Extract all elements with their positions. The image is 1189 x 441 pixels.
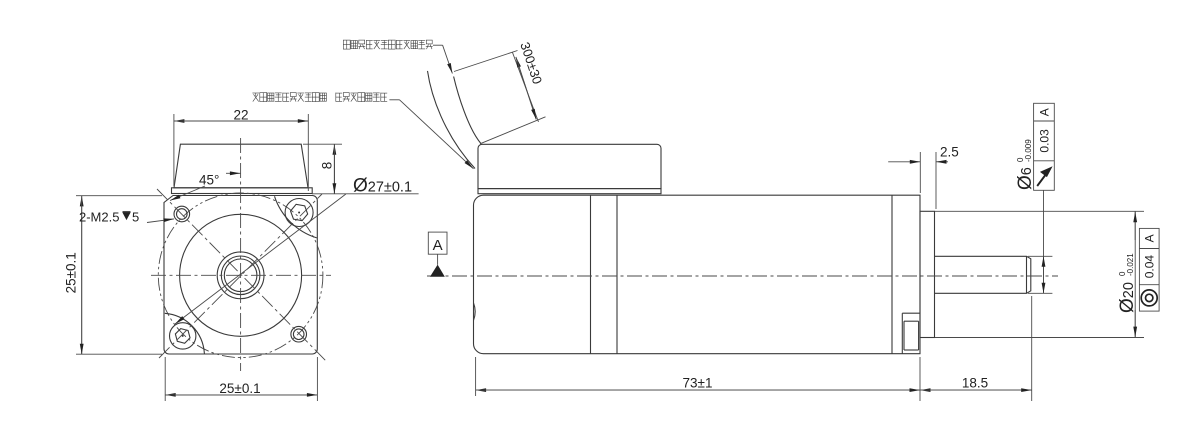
svg-text:25±0.1: 25±0.1 [64, 252, 79, 293]
svg-text:45°: 45° [199, 173, 219, 188]
svg-text:2.5: 2.5 [940, 145, 959, 160]
svg-text:-0.009: -0.009 [1024, 139, 1033, 162]
svg-text:25±0.1: 25±0.1 [219, 381, 260, 396]
svg-text:Ø20: Ø20 [1117, 282, 1138, 313]
svg-text:2-M2.5: 2-M2.5 [79, 210, 119, 225]
svg-text:300±30: 300±30 [517, 40, 545, 86]
svg-text:22: 22 [233, 108, 248, 123]
svg-text:8: 8 [320, 162, 335, 170]
svg-text:Ø6: Ø6 [1015, 167, 1036, 190]
svg-text:5: 5 [132, 210, 139, 225]
svg-text:Ø27±0.1: Ø27±0.1 [353, 176, 412, 197]
svg-text:-0.021: -0.021 [1126, 253, 1135, 276]
svg-text:A: A [433, 237, 443, 254]
svg-text:A: A [1038, 108, 1052, 116]
svg-text:73±1: 73±1 [683, 376, 713, 391]
svg-text:A: A [1143, 234, 1157, 242]
svg-text:18.5: 18.5 [962, 376, 988, 391]
svg-text:0.03: 0.03 [1038, 129, 1052, 153]
svg-text:0.04: 0.04 [1143, 255, 1157, 279]
